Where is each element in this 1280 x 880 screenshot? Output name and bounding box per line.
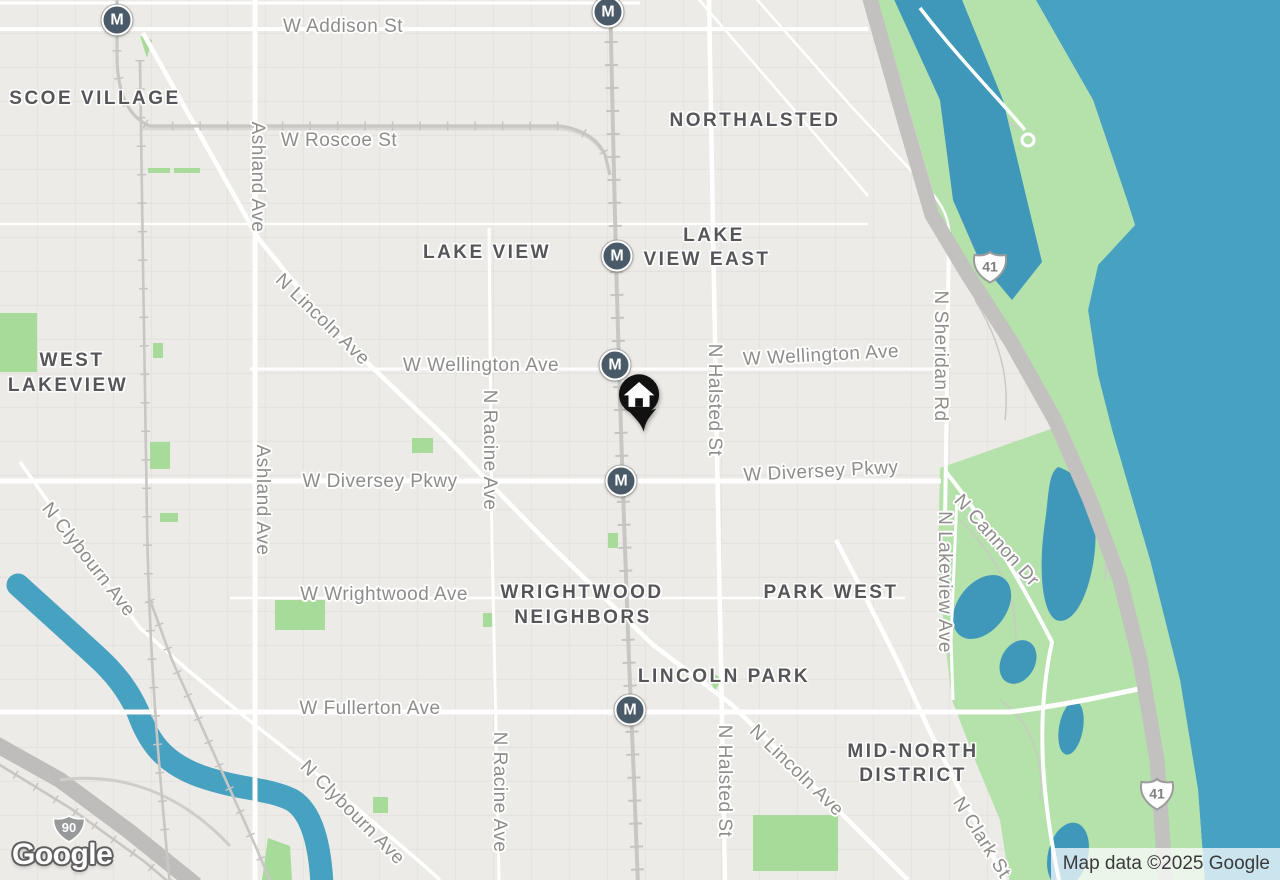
- street-label-n-halsted-st: N Halsted St: [703, 344, 725, 457]
- transit-station-marker[interactable]: M: [606, 466, 637, 497]
- street-label-n-lakeview-ave: N Lakeview Ave: [933, 511, 955, 653]
- neighborhood-label-mid-north-district: MID-NORTH: [847, 741, 978, 763]
- transit-station-marker[interactable]: M: [602, 241, 633, 272]
- neighborhood-label-wrightwood-neighbors: NEIGHBORS: [514, 607, 652, 629]
- map-attribution: Map data ©2025 Google: [1051, 848, 1280, 880]
- neighborhood-label-park-west: PARK WEST: [763, 582, 898, 604]
- us-41-shield: 41: [971, 250, 1009, 284]
- svg-text:41: 41: [1149, 786, 1165, 802]
- metro-icon: M: [110, 11, 123, 29]
- neighborhood-label-lake-view: LAKE VIEW: [423, 242, 551, 264]
- neighborhood-label-mid-north-district: DISTRICT: [859, 765, 967, 787]
- street-label-n-racine-ave: N Racine Ave: [488, 732, 510, 853]
- street-label-w-wrightwood-ave: W Wrightwood Ave: [300, 584, 468, 606]
- street-label-w-diversey-pkwy: W Diversey Pkwy: [302, 471, 457, 493]
- street-label-ashland-ave: Ashland Ave: [251, 445, 273, 556]
- metro-icon: M: [610, 247, 623, 265]
- street-label-n-racine-ave: N Racine Ave: [478, 390, 500, 511]
- street-label-w-wellington-ave: W Wellington Ave: [403, 355, 559, 377]
- street-label-ashland-ave: Ashland Ave: [246, 122, 268, 233]
- neighborhood-label-west-lakeview: LAKEVIEW: [8, 375, 128, 397]
- neighborhood-label-lake-view-east: LAKE: [683, 225, 745, 247]
- street-label-w-roscoe-st: W Roscoe St: [281, 130, 397, 152]
- home-pin-icon: [619, 374, 659, 431]
- transit-station-marker[interactable]: M: [102, 5, 133, 36]
- neighborhood-label-lake-view-east: VIEW EAST: [643, 249, 770, 271]
- neighborhood-label-lincoln-park: LINCOLN PARK: [638, 666, 810, 688]
- neighborhood-label-northalsted: NORTHALSTED: [669, 110, 840, 132]
- home-marker[interactable]: [618, 373, 662, 433]
- metro-icon: M: [601, 3, 614, 21]
- street-label-w-fullerton-ave: W Fullerton Ave: [299, 698, 440, 720]
- street-label-n-halsted-st: N Halsted St: [713, 725, 735, 838]
- metro-icon: M: [608, 356, 621, 374]
- street-label-w-addison-st: W Addison St: [283, 16, 403, 38]
- transit-station-marker[interactable]: M: [615, 695, 646, 726]
- google-logo[interactable]: Google: [12, 838, 112, 872]
- us-41-shield: 41: [1138, 777, 1176, 811]
- metro-icon: M: [623, 701, 636, 719]
- svg-text:90: 90: [62, 820, 76, 835]
- map-canvas[interactable]: W Addison St W Roscoe St Ashland Ave Ash…: [0, 0, 1280, 880]
- neighborhood-label-west-lakeview: WEST: [40, 350, 105, 372]
- neighborhood-label-wrightwood-neighbors: WRIGHTWOOD: [500, 582, 663, 604]
- basemap-graphic: [0, 0, 1280, 880]
- neighborhood-label-roscoe-village: SCOE VILLAGE: [9, 88, 180, 110]
- svg-text:41: 41: [982, 259, 998, 275]
- metro-icon: M: [614, 472, 627, 490]
- street-label-n-sheridan-rd: N Sheridan Rd: [929, 290, 951, 421]
